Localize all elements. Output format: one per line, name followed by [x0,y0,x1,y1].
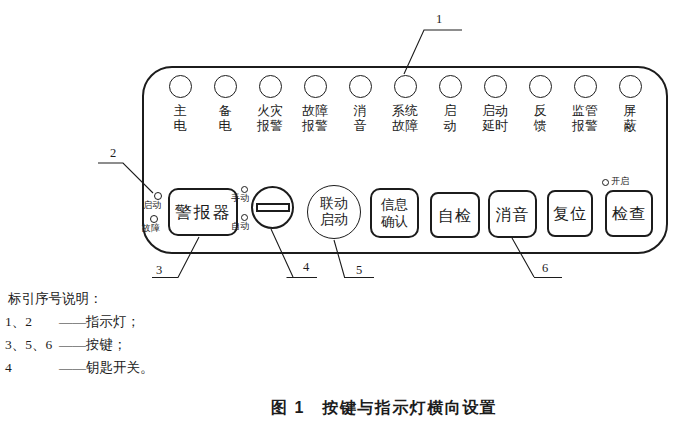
figure-caption: 图 1 按键与指示灯横向设置 [271,398,497,419]
callout-number-6: 6 [542,261,548,275]
indicator-label: 备电 [203,103,247,133]
indicator-label: 火灾报警 [248,103,292,133]
callout-number-1: 1 [436,12,442,26]
indicator-feedback: 反馈 [518,75,562,133]
indicator-start-delay: 启动延时 [473,75,517,133]
lamp-icon [349,75,372,98]
alarm-device-button: 警报器 [168,188,238,236]
indicator-label: 启动 [428,103,472,133]
lamp-icon [529,75,552,98]
check-open-lamp-icon [602,179,609,186]
legend-item: 1、2——指示灯； [5,313,140,331]
legend-item: 3、5、6——按键； [5,336,127,354]
check-button: 检查 [605,190,653,237]
lamp-icon [214,75,237,98]
check-open-lamp-label: 开启 [611,177,629,186]
indicator-backup-power: 备电 [203,75,247,133]
callout-number-2: 2 [110,146,116,160]
alarm-fault-lamp-icon [150,215,158,223]
figure-canvas: 主电 备电 火灾报警 故障报警 消音 系统故障 启动 启动延时 反馈 监管报警 … [0,0,681,435]
indicator-start: 启动 [428,75,472,133]
callout-number-5: 5 [356,263,362,277]
indicator-label: 系统故障 [383,103,427,133]
indicator-label: 屏蔽 [608,103,652,133]
indicator-label: 监管报警 [563,103,607,133]
lamp-icon [394,75,417,98]
lamp-icon [484,75,507,98]
reset-button: 复位 [547,190,593,237]
linkage-start-button: 联动 启动 [307,185,361,239]
callout-number-3: 3 [156,263,162,277]
indicator-main-power: 主电 [158,75,202,133]
auto-lamp-label: 自动 [231,222,249,231]
indicator-label: 故障报警 [293,103,337,133]
manual-lamp-icon [241,186,248,193]
mute-button: 消音 [488,190,537,238]
lamp-icon [169,75,192,98]
lamp-icon [304,75,327,98]
legend-title: 标引序号说明： [8,290,103,308]
indicator-label: 消音 [338,103,382,133]
lamp-icon [259,75,282,98]
self-test-button: 自检 [430,192,480,238]
auto-lamp-icon [241,214,248,221]
alarm-start-lamp-label: 启动 [143,201,161,210]
indicator-mute: 消音 [338,75,382,133]
indicator-supervisory-alarm: 监管报警 [563,75,607,133]
lamp-icon [439,75,462,98]
indicator-fault-alarm: 故障报警 [293,75,337,133]
callout-number-4: 4 [303,260,309,274]
key-slot-icon [256,203,290,212]
indicator-label: 主电 [158,103,202,133]
indicator-shield: 屏蔽 [608,75,652,133]
indicator-fire-alarm: 火灾报警 [248,75,292,133]
lamp-icon [574,75,597,98]
alarm-fault-lamp-label: 故障 [142,224,160,233]
manual-lamp-label: 手动 [231,194,249,203]
indicator-system-fault: 系统故障 [383,75,427,133]
info-confirm-button: 信息 确认 [370,188,419,238]
indicator-label: 反馈 [518,103,562,133]
legend-item: 4——钥匙开关。 [5,359,154,377]
alarm-start-lamp-icon [154,192,162,200]
lamp-icon [619,75,642,98]
indicator-label: 启动延时 [473,103,517,133]
